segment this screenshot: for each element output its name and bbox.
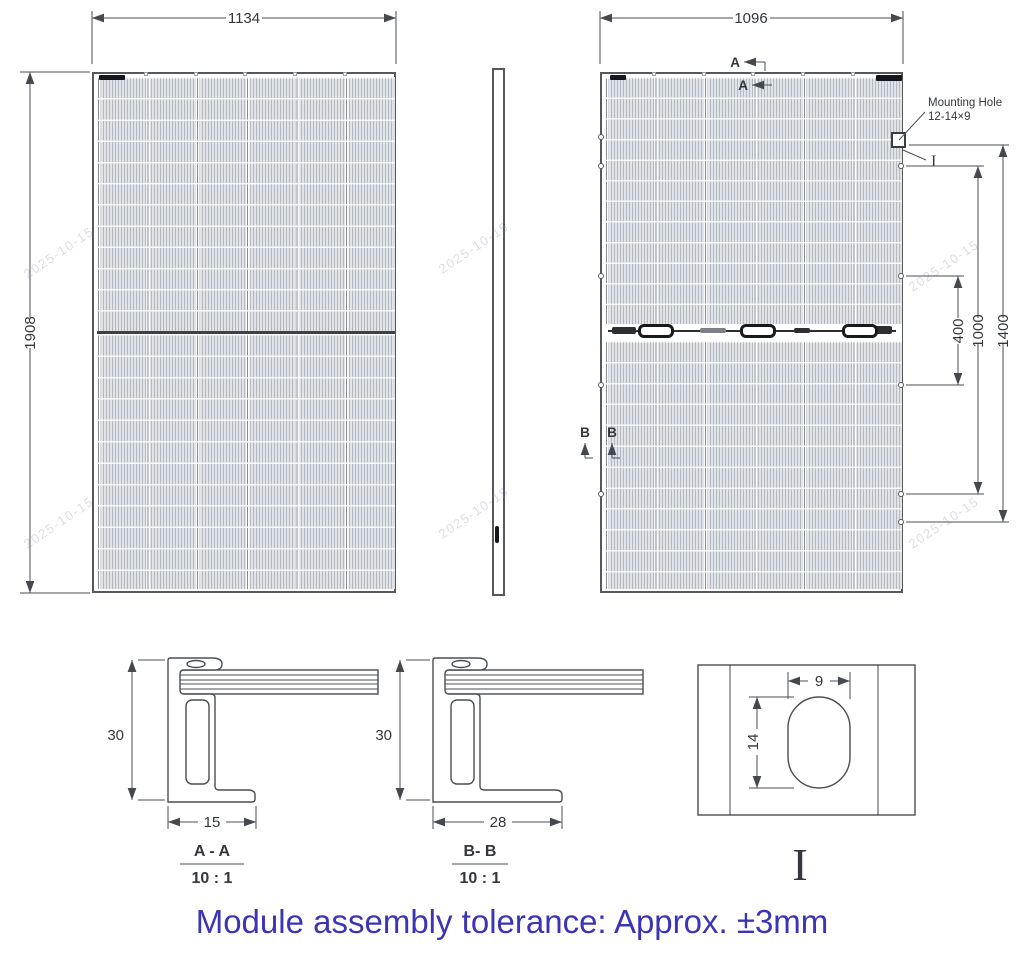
watermark: 2025-10-15 xyxy=(21,223,97,281)
front-height-label: 1908 xyxy=(22,316,39,349)
detail-width-label: 9 xyxy=(815,673,823,690)
frame-hole xyxy=(598,163,604,169)
back-width-dimension: 1096 xyxy=(600,10,903,64)
back-hole-dimensions: 400 1000 1400 xyxy=(906,145,1012,522)
frame-tick xyxy=(343,72,347,76)
drawing-canvas: 2025-10-15 2025-10-15 2025-10-15 2025-10… xyxy=(0,0,1024,970)
frame-hole xyxy=(598,273,604,279)
junction-box xyxy=(842,324,878,338)
front-cell-grid-bottom xyxy=(97,334,395,589)
back-label-mark xyxy=(876,75,902,81)
frame-hole xyxy=(898,163,904,169)
detail-ref-label: I xyxy=(931,153,936,170)
frame-hole xyxy=(598,491,604,497)
frame-tick xyxy=(194,72,198,76)
front-height-dimension: 1908 xyxy=(20,72,90,593)
side-view-profile xyxy=(492,68,505,596)
mounting-hole-square xyxy=(891,132,906,148)
frame-tick xyxy=(751,72,755,76)
junction-box xyxy=(740,324,776,338)
frame-tick xyxy=(243,72,247,76)
front-view-panel xyxy=(92,72,396,593)
section-a-label: A xyxy=(730,55,740,70)
detail-i-label: I xyxy=(792,839,807,890)
frame-tick xyxy=(144,72,148,76)
front-width-label: 1134 xyxy=(228,10,260,27)
mounting-hole-size: 12-14×9 xyxy=(928,111,971,123)
frame-hole xyxy=(898,519,904,525)
bb-title: B- B xyxy=(464,843,497,860)
front-width-dimension: 1134 xyxy=(92,10,396,64)
back-width-label: 1096 xyxy=(734,10,767,27)
frame-hole xyxy=(898,382,904,388)
frame-tick xyxy=(652,72,656,76)
back-cell-grid-top xyxy=(605,77,902,324)
frame-tick xyxy=(801,72,805,76)
frame-hole xyxy=(898,273,904,279)
tolerance-note: Module assembly tolerance: Approx. ±3mm xyxy=(0,903,1024,941)
dim-400-label: 400 xyxy=(950,318,967,343)
bb-scale: 10 : 1 xyxy=(460,870,501,887)
frame-tick xyxy=(293,72,297,76)
aa-height-label: 30 xyxy=(107,727,124,744)
mounting-hole-callout: Mounting Hole 12-14×9 I xyxy=(899,97,1002,170)
frame-hole xyxy=(598,382,604,388)
bb-height-label: 30 xyxy=(375,727,392,744)
side-view-junction-mark xyxy=(495,526,499,543)
front-label-mark xyxy=(99,75,125,80)
junction-box xyxy=(638,324,674,338)
aa-title: A - A xyxy=(194,843,231,860)
frame-tick xyxy=(702,72,706,76)
watermark: 2025-10-15 xyxy=(906,236,982,294)
cable-connector xyxy=(700,328,726,333)
dim-1000-label: 1000 xyxy=(970,314,987,347)
bb-width-label: 28 xyxy=(490,814,507,831)
detail-height-label: 14 xyxy=(745,734,762,751)
back-label-mark xyxy=(610,75,626,80)
frame-hole xyxy=(898,491,904,497)
watermark: 2025-10-15 xyxy=(21,493,97,551)
front-cell-grid-top xyxy=(97,77,395,331)
dim-1400-label: 1400 xyxy=(995,314,1012,347)
mounting-hole-title: Mounting Hole xyxy=(928,97,1002,109)
cable-connector xyxy=(794,328,810,333)
aa-scale: 10 : 1 xyxy=(192,870,233,887)
frame-tick xyxy=(851,72,855,76)
detail-i-drawing: 9 14 I xyxy=(698,665,915,890)
cable-connector xyxy=(612,327,636,334)
section-b-label: B xyxy=(580,425,590,440)
back-cell-grid-bottom xyxy=(605,341,902,589)
watermark: 2025-10-15 xyxy=(906,493,982,551)
frame-hole xyxy=(598,134,604,140)
aa-width-label: 15 xyxy=(204,814,221,831)
section-aa-drawing: 30 15 A - A 10 : 1 xyxy=(107,658,378,887)
section-bb-drawing: 30 28 B- B 10 : 1 xyxy=(375,658,643,887)
